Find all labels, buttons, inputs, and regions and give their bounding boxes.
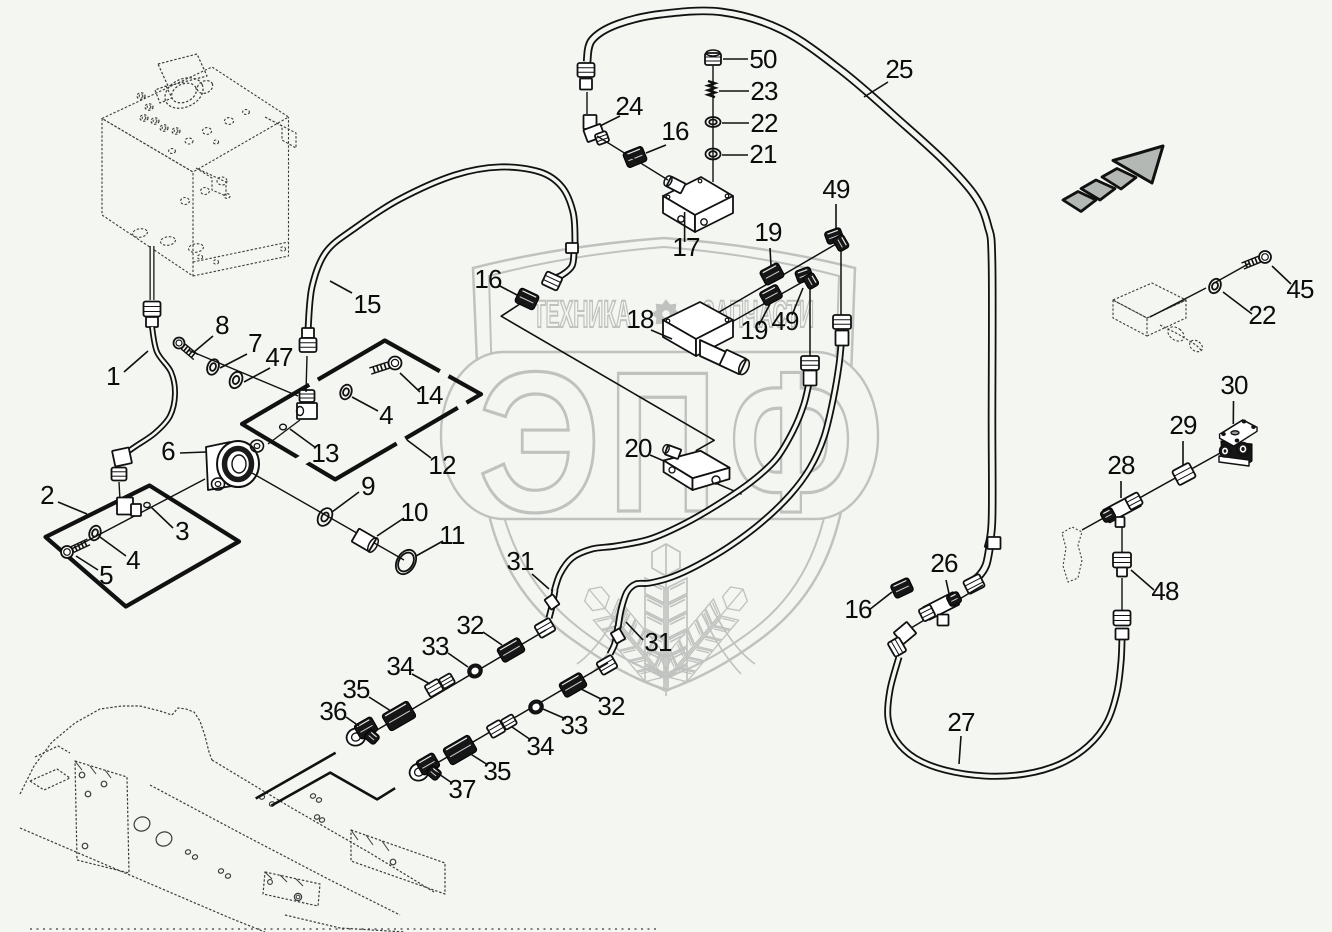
svg-text:4: 4 (126, 545, 140, 575)
svg-text:16: 16 (844, 594, 872, 624)
svg-text:7: 7 (248, 328, 262, 358)
svg-text:32: 32 (456, 610, 484, 640)
svg-text:26: 26 (930, 548, 958, 578)
svg-text:16: 16 (474, 264, 502, 294)
svg-text:35: 35 (342, 674, 370, 704)
svg-text:9: 9 (361, 471, 375, 501)
svg-text:21: 21 (749, 139, 777, 169)
svg-text:37: 37 (448, 774, 476, 804)
svg-text:23: 23 (750, 76, 778, 106)
svg-text:3: 3 (175, 516, 189, 546)
svg-text:34: 34 (526, 731, 554, 761)
svg-text:11: 11 (439, 520, 465, 550)
svg-text:28: 28 (1107, 450, 1135, 480)
svg-text:33: 33 (421, 631, 449, 661)
svg-text:34: 34 (386, 651, 414, 681)
svg-text:35: 35 (483, 756, 511, 786)
svg-text:22: 22 (1248, 300, 1276, 330)
svg-text:5: 5 (99, 560, 113, 590)
svg-text:25: 25 (885, 54, 913, 84)
svg-text:48: 48 (1151, 576, 1179, 606)
svg-text:20: 20 (624, 433, 652, 463)
svg-text:10: 10 (400, 497, 428, 527)
svg-text:31: 31 (506, 546, 534, 576)
svg-text:33: 33 (560, 710, 588, 740)
svg-text:Ф: Ф (729, 331, 853, 554)
svg-text:17: 17 (672, 232, 700, 262)
svg-text:13: 13 (311, 438, 339, 468)
svg-text:49: 49 (822, 174, 850, 204)
svg-text:ТЕХНИКА: ТЕХНИКА (533, 294, 631, 336)
svg-text:31: 31 (644, 627, 672, 657)
svg-text:50: 50 (749, 44, 777, 74)
svg-text:15: 15 (353, 289, 381, 319)
svg-text:22: 22 (750, 108, 778, 138)
svg-text:4: 4 (379, 400, 393, 430)
svg-text:32: 32 (597, 691, 625, 721)
svg-text:6: 6 (161, 436, 175, 466)
svg-text:19: 19 (754, 217, 782, 247)
svg-text:19: 19 (740, 315, 768, 345)
svg-text:1: 1 (106, 361, 120, 391)
svg-text:8: 8 (215, 310, 229, 340)
svg-text:27: 27 (947, 707, 975, 737)
svg-text:45: 45 (1286, 274, 1314, 304)
svg-text:30: 30 (1220, 370, 1248, 400)
svg-text:2: 2 (40, 480, 54, 510)
svg-text:12: 12 (428, 450, 456, 480)
svg-text:49: 49 (771, 306, 799, 336)
svg-text:29: 29 (1169, 410, 1197, 440)
svg-text:14: 14 (415, 380, 443, 410)
svg-text:18: 18 (626, 304, 654, 334)
svg-text:16: 16 (661, 116, 689, 146)
